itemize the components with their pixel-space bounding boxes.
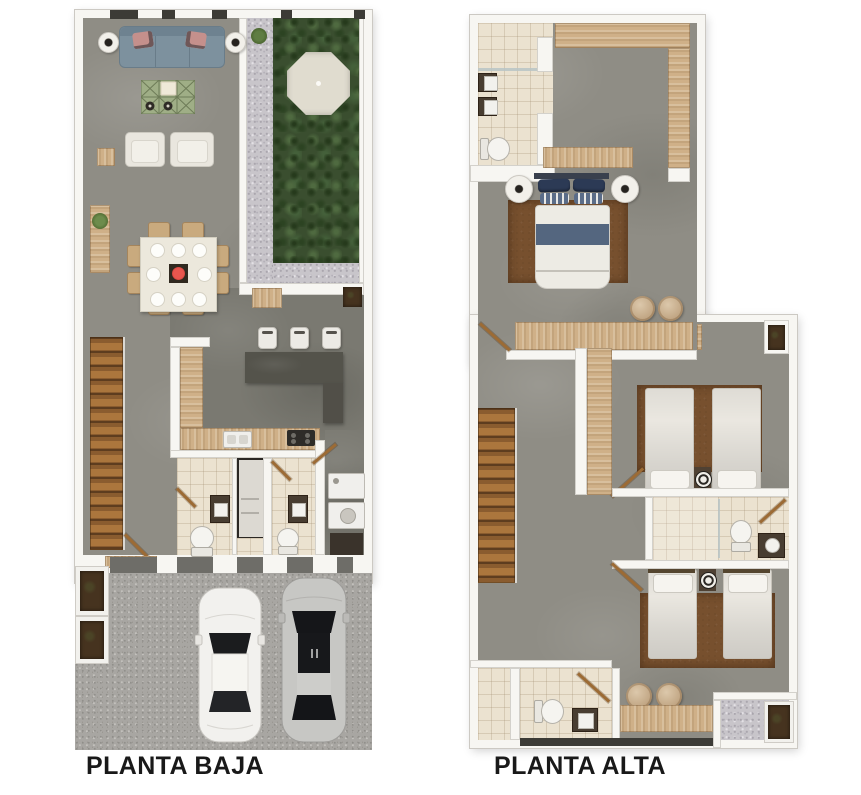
pa-bed-headboard [723,569,770,573]
pb-bathroom1-vanity [210,495,230,523]
pa-midbath-glass [718,499,720,558]
plan-planta-baja [75,10,372,750]
pa-storage-closet-floor [478,668,510,740]
pa-terrace-planter-soil [768,705,790,739]
pb-sink-bowl [227,435,236,444]
pa-midbath-basin [765,538,780,553]
pa-midbath-top-wall [612,488,789,497]
pb-plate [146,267,161,282]
pa-striped-pillow [574,193,603,204]
label-planta-baja: PLANTA BAJA [86,752,264,781]
pb-garden-divider-wall [239,18,247,283]
pb-kitchen-wall-stub [170,337,210,347]
pa-bed-pillow [728,574,768,593]
pb-plate [150,292,165,307]
pb-armchair-right-cushion [177,140,208,163]
pa-stair-railing [515,408,517,583]
label-planta-alta: PLANTA ALTA [494,752,666,781]
pa-lowerleft-wall [470,660,612,668]
pb-armchair-right [170,132,214,167]
pb-garage-opening [177,557,213,573]
pa-bed-pillow [650,470,690,489]
pb-window-5 [354,10,365,19]
pb-bathroom2-toilet [275,528,300,554]
pb-kitchen-sink [223,431,252,448]
pa-master-headboard [534,173,609,179]
pb-plate [171,243,186,258]
pb-staircase [90,337,123,550]
pb-sofa-pillow-left [132,31,154,50]
pb-gazebo-center [316,81,321,86]
pa-duvet-fold [536,270,609,272]
pb-island-arm [323,383,343,423]
pb-garden-gravel-bottom [273,263,359,283]
pa-master-toilet [480,135,508,161]
pb-window-4 [281,10,292,19]
pb-utility-shelf-line [241,512,259,514]
pa-bedroom2-bed [645,388,694,494]
pa-toilet-bowl [730,520,752,544]
pa-bed-pillow [717,470,757,489]
pa-bed-headboard [648,569,695,573]
pa-toilet-bowl [487,137,510,161]
pa-closet-side [668,48,690,168]
pb-garage-opening [237,557,263,573]
pb-window-3 [212,10,227,19]
pb-burner [305,439,310,444]
pa-bottom-desk [620,705,713,732]
pb-dining-table [140,237,217,312]
pb-planter-box [75,616,109,664]
pa-midbath-toilet [728,520,752,552]
pb-bath-top-wall [170,450,320,458]
pb-silver-car [278,575,350,745]
pa-navy-pillow [573,178,605,192]
pb-plate [197,267,212,282]
pa-wardrobe-wall [575,348,587,495]
pa-master-basin [484,100,498,115]
pa-corridor-niche [768,325,785,350]
pa-midbath-shower [653,497,718,560]
pa-master-sink-2 [478,97,497,116]
pb-garage-opening [287,557,313,573]
pb-kitchen-wall-vertical [170,347,180,458]
pa-staircase [478,408,515,583]
pb-bar-stool [258,327,277,349]
pb-bathroom2-vanity [288,495,308,523]
pb-plate [150,243,165,258]
pa-duvet-stripe [536,224,609,245]
pa-master-pouf [630,296,655,321]
pb-stair-railing [123,337,125,550]
pb-toilet-tank [278,546,298,555]
pb-plate [192,243,207,258]
pa-bedroom3-nightstand [699,569,716,591]
pb-door-mat [252,288,282,308]
pb-bar-stool [290,327,309,349]
pb-burner [305,433,310,438]
pb-plate [171,292,186,307]
pa-master-basin [484,76,498,91]
pa-nightstand-lamp [695,471,712,488]
pb-sink-bowl [239,435,248,444]
pa-terrace-side-wall [713,700,721,748]
pb-bathroom2-basin [292,503,306,517]
pb-bathroom1-toilet [187,526,215,556]
pb-sofa [119,26,225,68]
pb-path-plant [251,28,267,44]
pb-toilet-tank [191,547,213,557]
pa-bedroom3-bed [648,569,697,659]
pb-plate [192,292,207,307]
pa-terrace-top-wall [713,692,797,700]
pa-closet-bath-wall [510,668,520,740]
pa-bath-desk-wall [612,668,620,740]
pa-bed-pillow [653,574,693,593]
pb-planter-soil [80,621,104,659]
pa-striped-pillow [540,193,569,204]
pb-gravel-path [247,18,273,283]
pb-armchair-left-cushion [131,140,159,163]
pb-garage-opening [337,557,353,573]
pb-sofa-seam-1 [155,36,156,67]
pa-lowerbath-vanity [572,708,598,732]
pa-nightstand-right [611,175,639,203]
pa-bedroom3-bed [723,569,772,659]
pb-utility-shelf-line [241,498,259,500]
pb-dryer [328,502,365,529]
pb-burner [291,433,296,438]
pb-stove [287,430,315,446]
pb-island-bar [245,352,343,383]
pa-midbath-left-wall [645,497,653,560]
pa-midbath-bottom-wall [612,560,789,569]
pb-planter-soil [80,571,104,611]
pb-coffee-table [141,80,195,114]
pb-window-1 [110,10,138,19]
pb-washer-dial [333,478,339,484]
pb-bathroom1-basin [214,503,228,517]
pb-lamp-table-right [225,32,246,53]
pb-console-plant [92,213,108,229]
pb-laundry-cabinet [330,533,363,555]
pa-lowerbath-toilet [534,698,562,724]
pb-storage-niche [343,287,362,307]
pa-toilet-tank [731,542,751,552]
pa-wardrobe-strip [587,348,612,495]
pb-closet-floor [237,538,263,555]
pb-burner [291,439,296,444]
pa-master-duvet [535,205,610,289]
pa-master-pouf [658,296,683,321]
pa-dresser [543,147,633,168]
pb-window-2 [162,10,175,19]
pa-shower-glass [478,68,537,71]
pa-master-sink-1 [478,73,497,92]
pb-sofa-pillow-right [185,31,207,50]
pb-wall-closet-b2 [263,458,272,555]
pb-lamp-table-left [98,32,119,53]
pb-bar-stool [322,327,341,349]
pa-nightstand-left [505,175,533,203]
pa-bedroom2-bed [712,388,761,494]
pb-white-car [195,585,265,745]
pa-bath-wall-stub-a [537,37,553,72]
pa-study-desk [515,322,693,350]
pa-toilet-bowl [541,699,564,724]
floor-plan-canvas: PLANTA BAJA PLANTA ALTA [0,0,861,795]
pb-armchair-left [125,132,165,167]
pa-navy-pillow [538,178,570,192]
pa-terrace-planter-frame [764,701,794,743]
pb-garden-right-wall [359,18,364,283]
pb-side-table-wood [97,148,115,166]
pb-garage-opening [110,557,157,573]
plan-planta-alta [470,15,797,748]
pa-closet-end-wall [668,168,690,182]
pb-dryer-door [340,508,356,524]
pb-planter-box [75,566,109,616]
pb-centerpiece-flowers [172,267,185,280]
pa-lowerbath-basin [578,713,594,729]
pa-corridor-threshold [697,324,702,350]
pb-washer [328,473,365,499]
pb-counter-vertical [180,347,203,428]
pa-midbath-vanity [758,533,785,558]
pa-bottom-window-band [520,738,713,746]
pa-nightstand-lamp [700,572,717,589]
pa-closet-top [555,23,690,48]
